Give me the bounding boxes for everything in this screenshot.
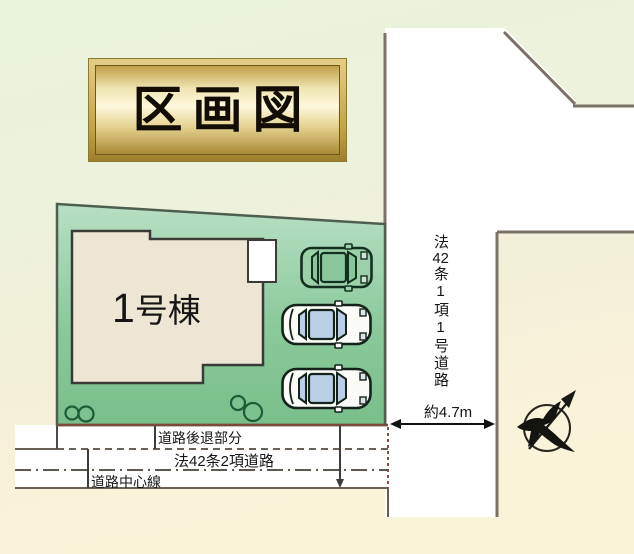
road-setback-label: 道路後退部分 (158, 428, 242, 448)
shrub-icon (66, 407, 94, 422)
vertical-road-shape (385, 28, 634, 517)
title-plate: 区画図 (88, 58, 347, 162)
site-plan: 区画図 1号棟 法42条1項1号道路 約4.7m 道路後退部分 法42条2項道路… (0, 0, 634, 554)
vertical-road-label: 法42条1項1号道路 (429, 234, 451, 394)
bottom-road-name-label: 法42条2項道路 (174, 450, 274, 471)
page-title: 区画図 (123, 85, 313, 135)
porch (248, 240, 276, 282)
road-width-label: 約4.7m (398, 401, 498, 422)
car-suv-icon (302, 244, 372, 291)
building-number: 1 (112, 288, 135, 329)
title-plate-inner: 区画図 (95, 65, 340, 155)
building-suffix: 号棟 (135, 294, 201, 327)
car-sedan-icon (283, 301, 371, 348)
road-centerline-label: 道路中心線 (91, 472, 161, 492)
building-label: 1号棟 (112, 288, 201, 329)
compass-north-icon (517, 390, 576, 452)
car-sedan-icon (283, 365, 371, 412)
